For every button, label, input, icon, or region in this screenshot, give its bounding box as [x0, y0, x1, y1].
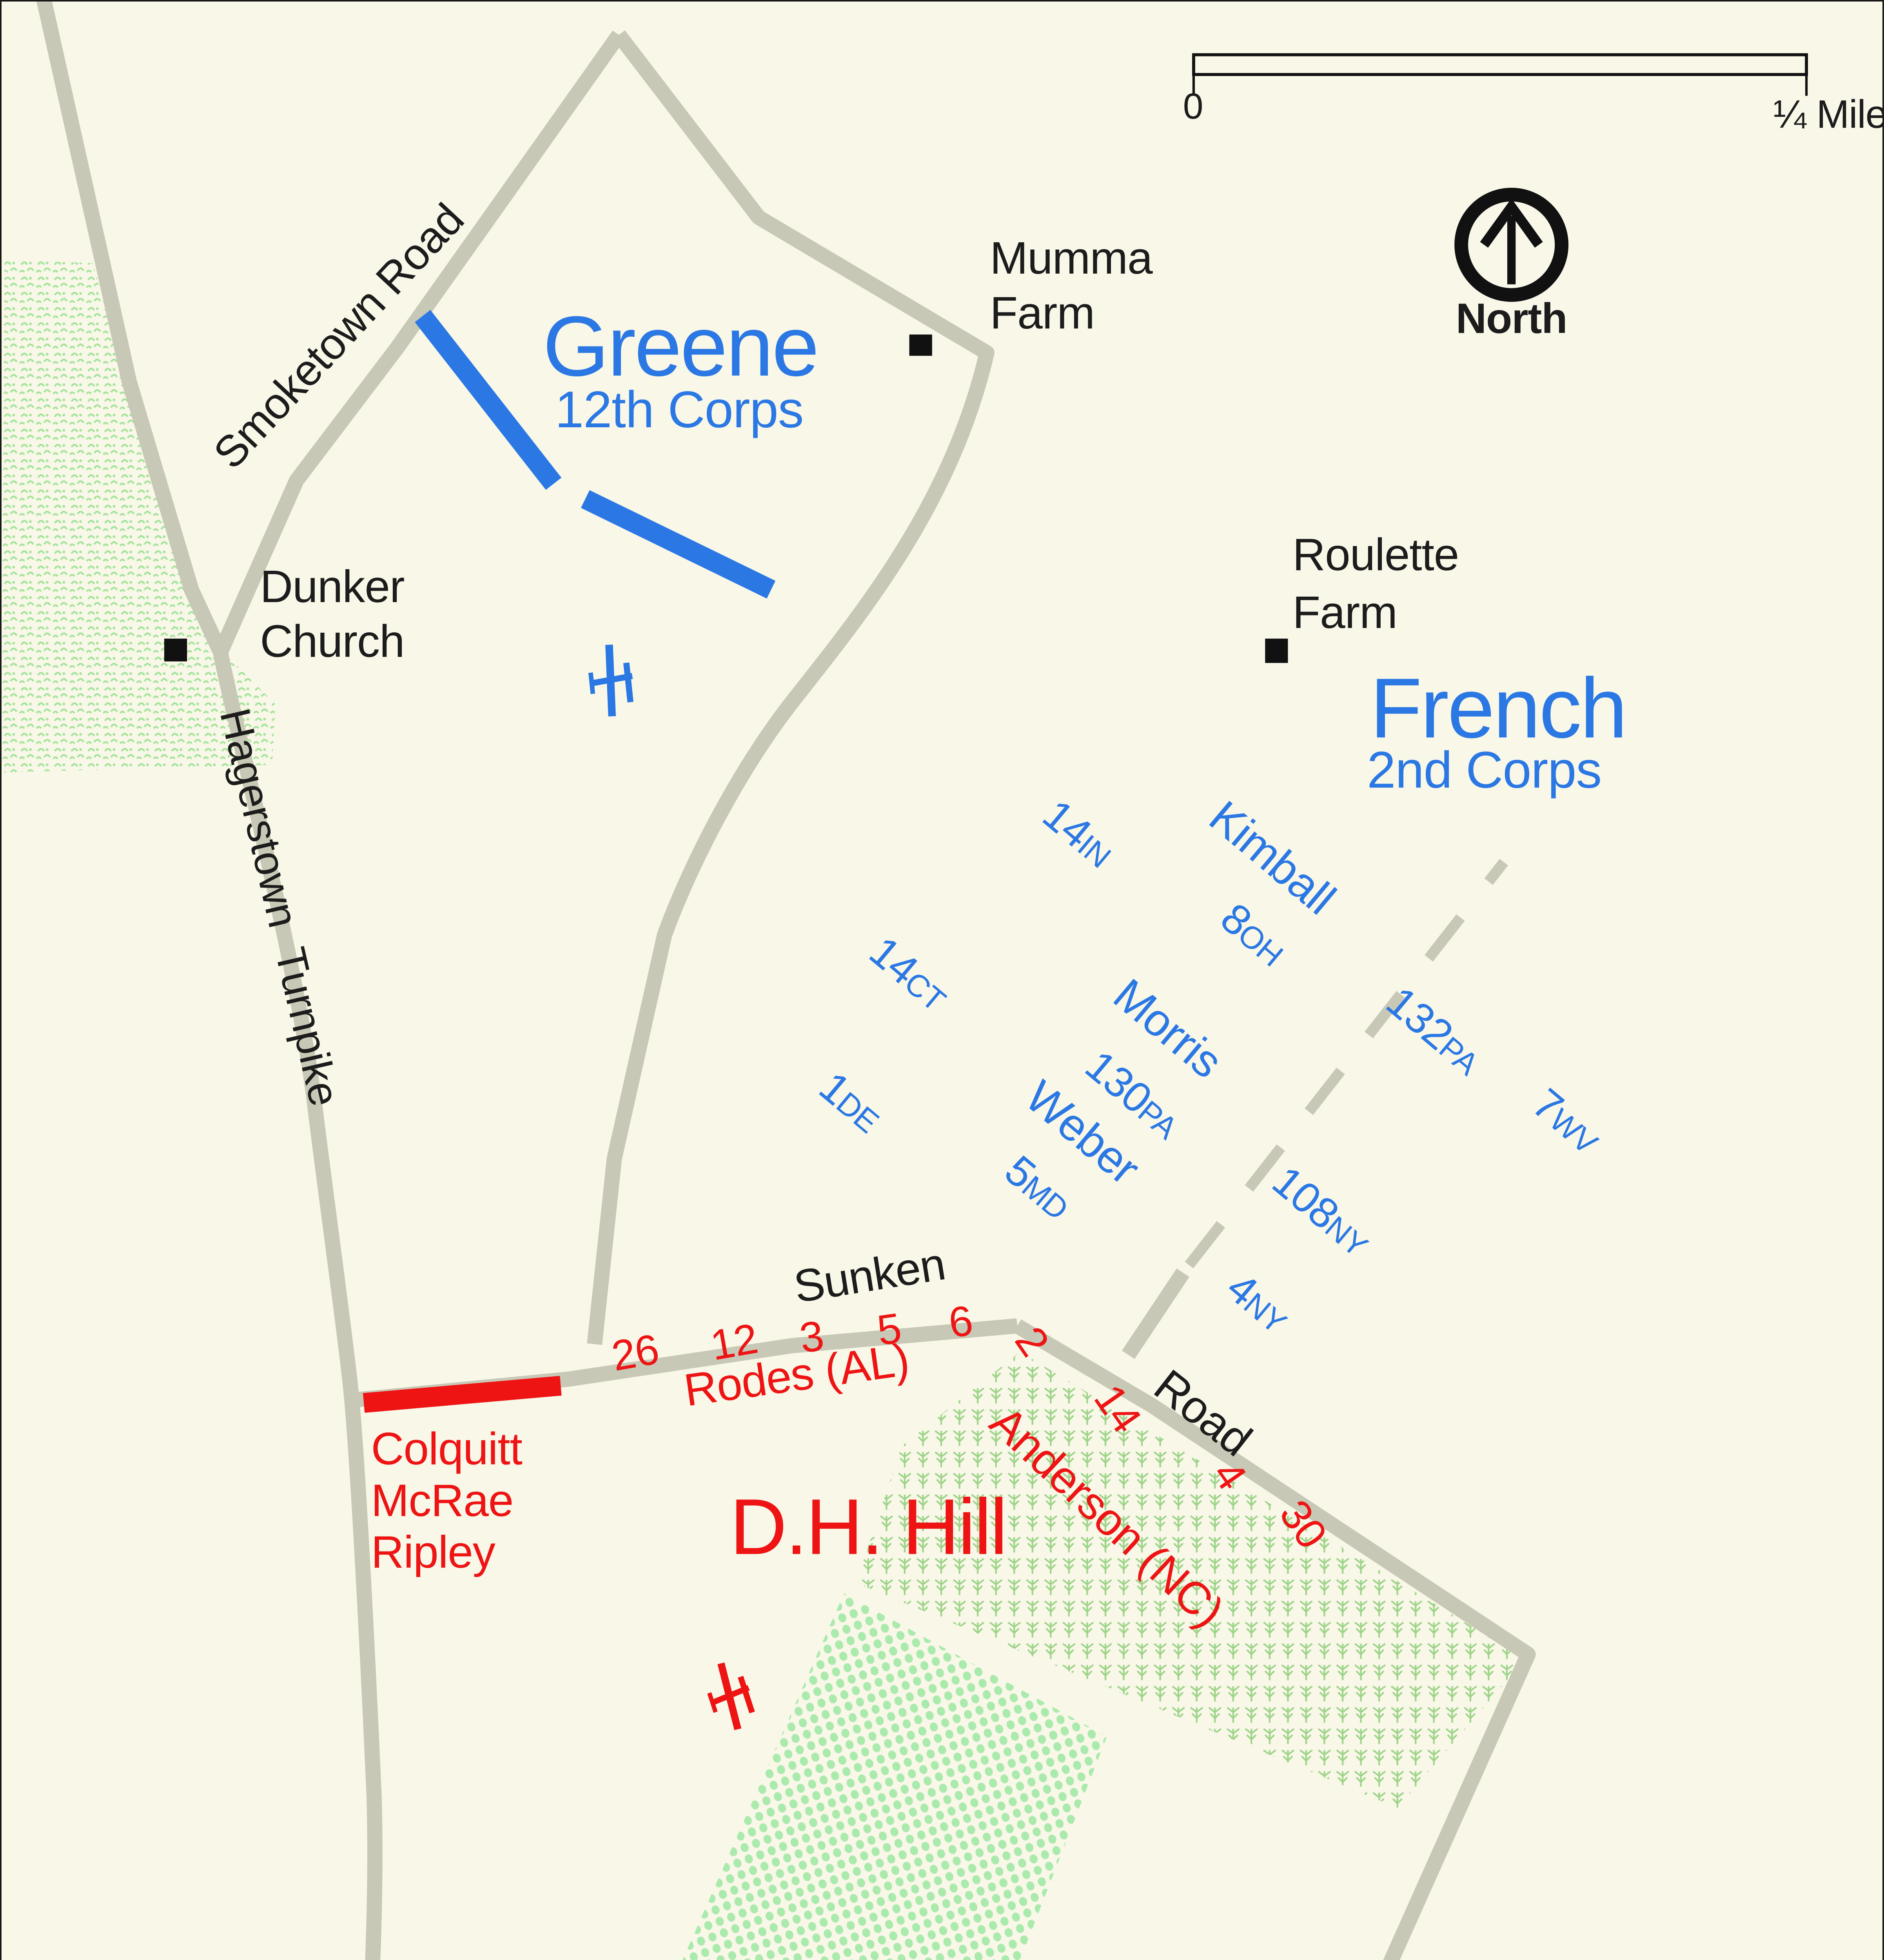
dunker-church-marker — [164, 639, 187, 661]
road-farm-lane-stub — [1128, 1273, 1183, 1355]
road-mumma-lane — [595, 35, 987, 1344]
roulette-farm-marker — [1265, 639, 1288, 663]
ripley-label: Ripley — [371, 1528, 495, 1580]
scale-quarter-mile-label: ¼ Mile — [1717, 91, 1884, 138]
greene-label: Greene — [543, 296, 818, 395]
dh-hill-label: D.H. Hill — [730, 1483, 1006, 1574]
greene-corps-label: 12th Corps — [555, 382, 804, 441]
union-battery-icon — [588, 642, 636, 718]
mumma-farm-label: MummaFarm — [990, 232, 1152, 342]
scale-bar — [1194, 55, 1806, 96]
north-label: North — [1443, 295, 1580, 344]
greene-position-bar-1 — [415, 310, 561, 490]
confederate-position-bar — [363, 1376, 562, 1413]
french-corps-label: 2nd Corps — [1367, 742, 1601, 801]
greene-position-bar-2 — [581, 490, 775, 599]
mcrae-label: McRae — [371, 1476, 513, 1528]
dunker-church-label: DunkerChurch — [260, 561, 404, 670]
scale-zero-label: 0 — [1183, 87, 1203, 129]
rodes-regiment-26: 26 — [608, 1325, 662, 1381]
colquitt-label: Colquitt — [371, 1425, 522, 1477]
roulette-farm-label: RouletteFarm — [1292, 528, 1459, 643]
battle-map: 0 ¼ Mile North Smoketown Road Hagerstown… — [0, 0, 1884, 1960]
confederate-battery-icon — [702, 1657, 760, 1734]
mumma-farm-marker — [909, 334, 932, 356]
north-arrow-icon — [1461, 194, 1562, 295]
rodes-regiment-12: 12 — [707, 1315, 761, 1371]
